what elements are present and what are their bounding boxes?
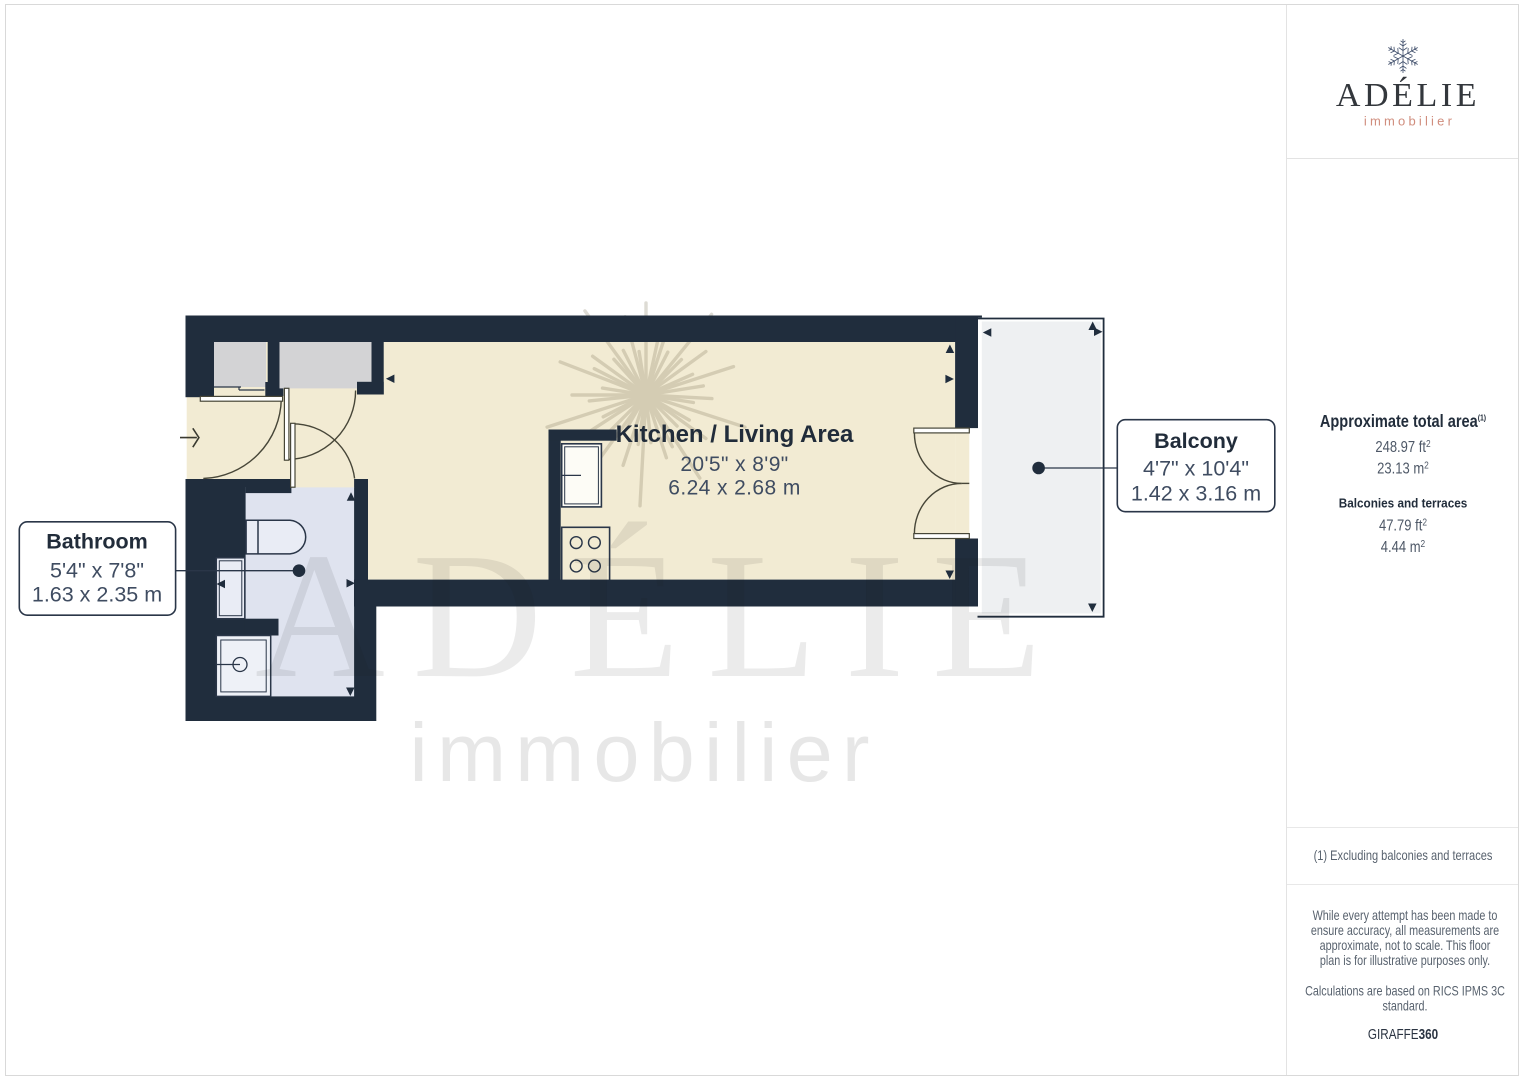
svg-text:(1) Excluding balconies and te: (1) Excluding balconies and terraces (1314, 848, 1493, 863)
svg-text:Kitchen / Living Area: Kitchen / Living Area (616, 421, 854, 448)
svg-text:standard.: standard. (1382, 998, 1427, 1013)
svg-text:248.97 ft2: 248.97 ft2 (1375, 438, 1430, 456)
svg-text:4.44 m2: 4.44 m2 (1381, 538, 1425, 556)
svg-text:Approximate total area(1): Approximate total area(1) (1320, 412, 1487, 432)
svg-text:While every attempt has been m: While every attempt has been made to (1313, 908, 1498, 923)
svg-text:20'5" x 8'9": 20'5" x 8'9" (680, 453, 788, 476)
svg-text:Calculations are based on RICS: Calculations are based on RICS IPMS 3C (1305, 983, 1505, 998)
svg-text:immobilier: immobilier (1364, 114, 1455, 129)
svg-text:plan is for illustrative purpo: plan is for illustrative purposes only. (1320, 953, 1490, 968)
svg-text:ensure accuracy, all measureme: ensure accuracy, all measurements are (1311, 923, 1499, 938)
svg-text:Balcony: Balcony (1154, 429, 1238, 453)
svg-text:ADÉLIE: ADÉLIE (1336, 77, 1480, 114)
svg-text:ADÉLIE: ADÉLIE (255, 516, 1069, 715)
svg-text:47.79 ft2: 47.79 ft2 (1379, 517, 1427, 535)
svg-text:23.13 m2: 23.13 m2 (1377, 460, 1429, 478)
svg-text:5'4" x 7'8": 5'4" x 7'8" (50, 559, 144, 583)
svg-text:1.63 x 2.35 m: 1.63 x 2.35 m (32, 582, 162, 606)
svg-text:4'7" x 10'4": 4'7" x 10'4" (1143, 457, 1249, 481)
svg-text:approximate, not to scale. Thi: approximate, not to scale. This floor (1320, 938, 1491, 953)
svg-text:Bathroom: Bathroom (46, 530, 148, 554)
svg-text:GIRAFFE360: GIRAFFE360 (1368, 1026, 1438, 1043)
svg-text:immobilier: immobilier (409, 706, 878, 799)
svg-text:Balconies and terraces: Balconies and terraces (1339, 496, 1468, 510)
svg-text:6.24 x 2.68 m: 6.24 x 2.68 m (668, 476, 800, 499)
svg-text:1.42 x 3.16 m: 1.42 x 3.16 m (1131, 481, 1261, 505)
